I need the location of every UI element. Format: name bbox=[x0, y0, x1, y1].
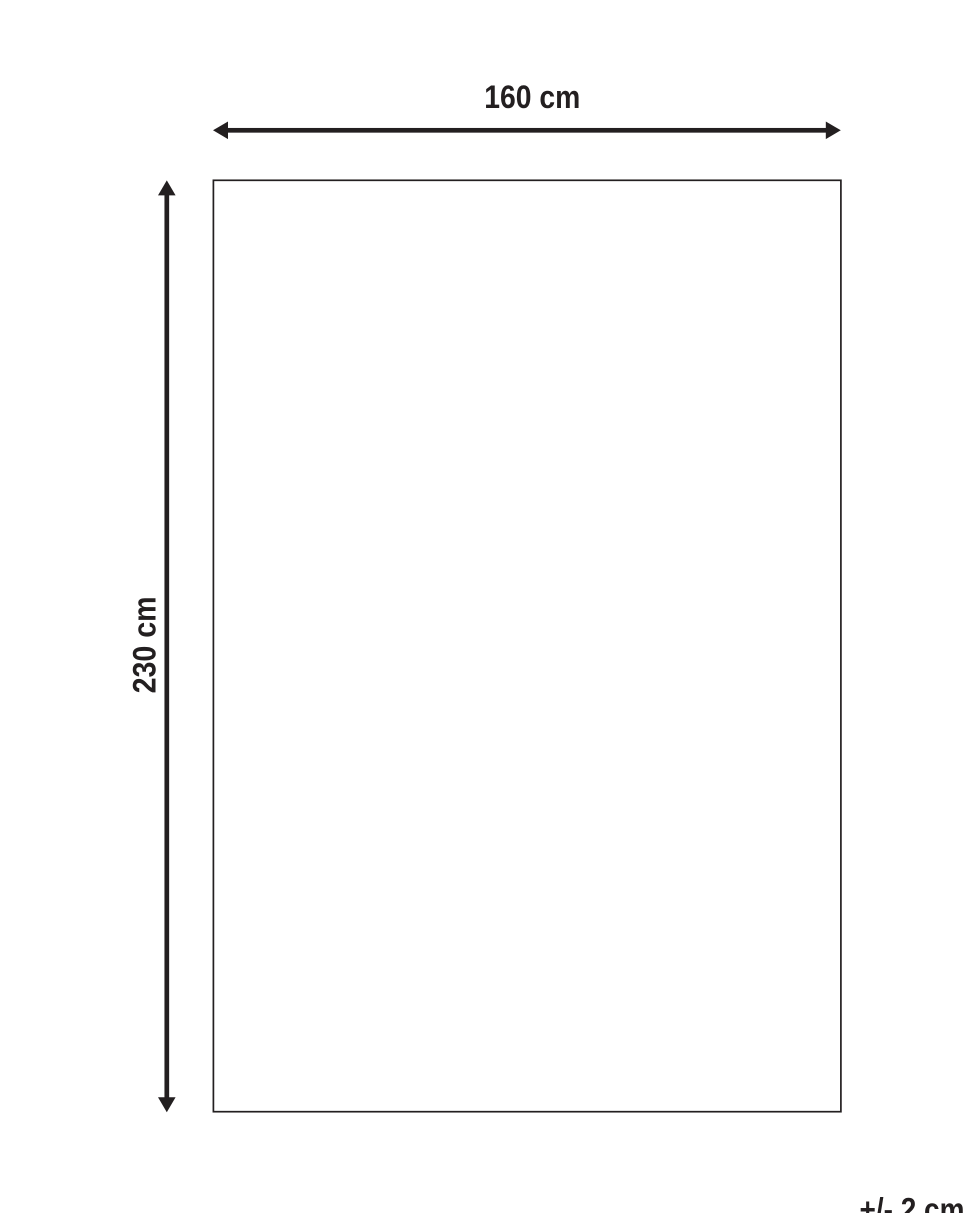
svg-text:+/- 2 cm: +/- 2 cm bbox=[860, 1192, 965, 1213]
svg-text:160 cm: 160 cm bbox=[484, 79, 580, 115]
svg-text:230 cm: 230 cm bbox=[127, 596, 163, 693]
